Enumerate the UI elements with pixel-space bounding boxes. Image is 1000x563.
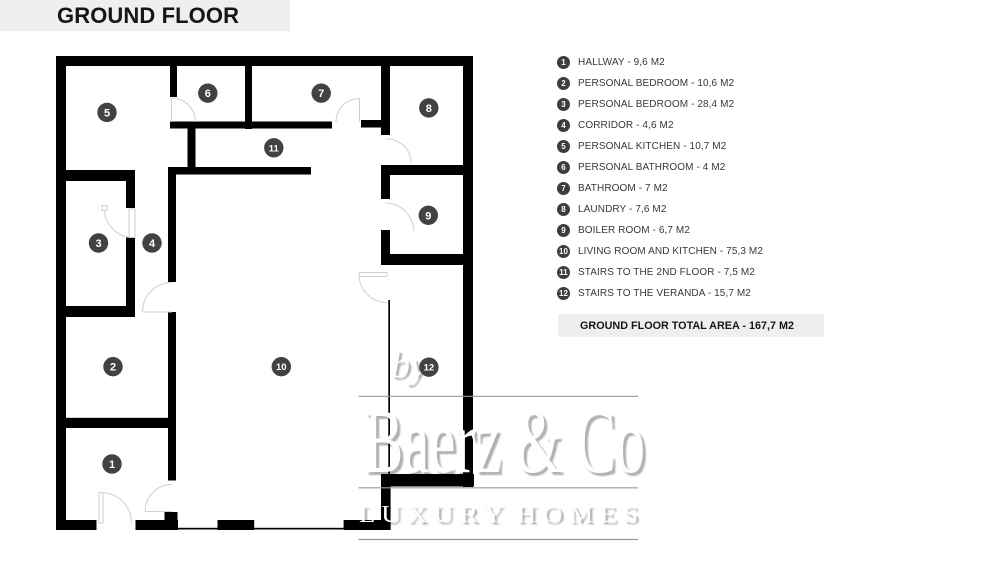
svg-text:7: 7 <box>318 88 324 100</box>
svg-text:12: 12 <box>424 363 435 374</box>
svg-text:8: 8 <box>426 103 432 115</box>
svg-text:L U X U R Y H O M E S: L U X U R Y H O M E S <box>359 502 638 528</box>
svg-text:3: 3 <box>95 238 101 250</box>
svg-text:11: 11 <box>269 143 280 154</box>
svg-text:2: 2 <box>110 362 116 374</box>
svg-text:5: 5 <box>104 107 110 119</box>
svg-text:1: 1 <box>109 459 115 471</box>
svg-text:6: 6 <box>205 88 211 100</box>
svg-text:10: 10 <box>276 362 287 373</box>
svg-text:Baerz & Co: Baerz & Co <box>364 391 645 492</box>
svg-text:4: 4 <box>149 238 156 250</box>
svg-text:9: 9 <box>425 210 431 222</box>
